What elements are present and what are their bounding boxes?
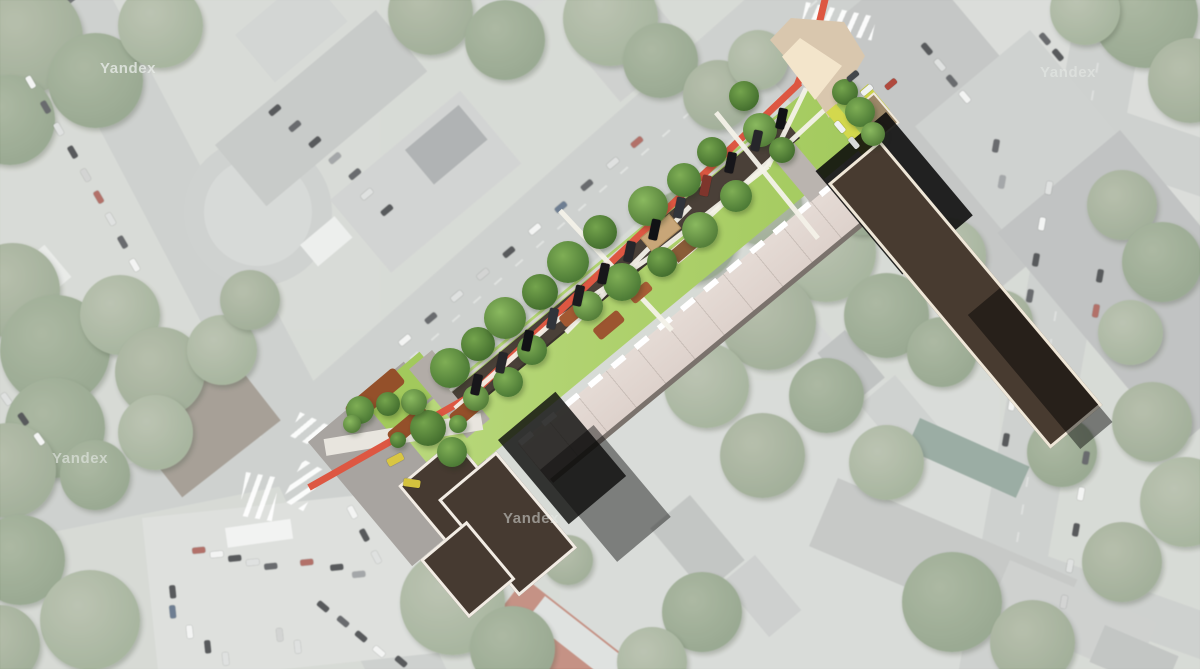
- tree: [437, 437, 467, 467]
- yandex-watermark: Yandex: [52, 450, 108, 467]
- yandex-watermark: Yandex: [503, 510, 559, 527]
- tree: [667, 163, 701, 197]
- tree: [449, 415, 467, 433]
- tree: [647, 247, 677, 277]
- tree: [401, 389, 427, 415]
- tree: [547, 241, 589, 283]
- tree: [484, 297, 526, 339]
- tree: [697, 137, 727, 167]
- tree: [583, 215, 617, 249]
- tree: [861, 122, 885, 146]
- tree: [376, 392, 400, 416]
- yandex-watermark: Yandex: [100, 60, 156, 77]
- tree: [522, 274, 558, 310]
- masterplan-overlay: [0, 0, 1200, 669]
- tree: [769, 137, 795, 163]
- parked-car: [884, 78, 898, 91]
- tree: [729, 81, 759, 111]
- tree: [390, 432, 406, 448]
- aerial-site-plan-map[interactable]: Yandex Yandex Yandex Yandex: [0, 0, 1200, 669]
- tree: [720, 180, 752, 212]
- tree: [343, 415, 361, 433]
- tree: [628, 186, 668, 226]
- tree: [682, 212, 718, 248]
- yandex-watermark: Yandex: [1040, 64, 1096, 81]
